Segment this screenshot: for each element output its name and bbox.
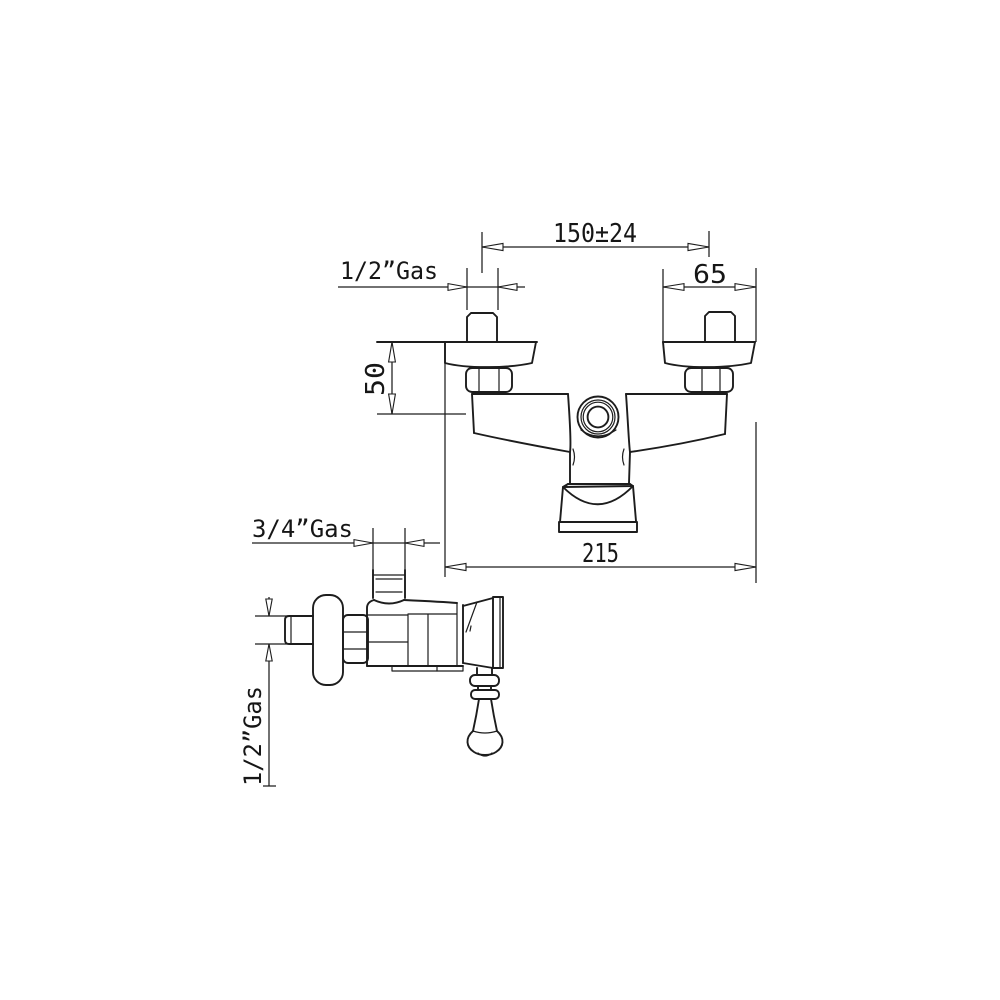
column-fillet-left	[573, 449, 575, 465]
escutcheon-cone-line	[466, 602, 477, 632]
arrowhead-34-left	[354, 540, 373, 547]
outlet-stub-side	[373, 570, 405, 598]
left-inlet-stub	[467, 313, 497, 341]
handle-bulb	[467, 731, 502, 755]
hex-nut-side	[343, 615, 368, 663]
arrowhead-inlet-right	[498, 284, 517, 291]
left-nut-facets	[479, 369, 499, 391]
mixer-tap-drawing: 150±24 1/2”Gas 65 50 215 3/4”Gas	[0, 0, 1000, 1000]
escutcheon-tick	[470, 626, 471, 631]
arrowhead-65-right	[735, 284, 756, 291]
arrowhead-50-top	[389, 342, 396, 362]
dim-label-wall-depth: 50	[361, 362, 391, 396]
body-right-edge	[725, 394, 727, 434]
spout-lip-arc	[563, 486, 633, 504]
arrowhead-215-right	[735, 563, 756, 570]
front-view	[377, 312, 755, 532]
dim-label-center-distance: 150±24	[553, 219, 637, 249]
arrowhead-50-bottom	[389, 394, 396, 414]
left-wing-bottom	[474, 433, 570, 452]
valve-body-saddle	[374, 600, 404, 604]
spout-bottom-band	[559, 522, 637, 532]
side-view	[285, 570, 503, 756]
handle-bulb-top	[473, 731, 497, 733]
right-inlet-stub	[705, 312, 735, 341]
technical-drawing-page: 150±24 1/2”Gas 65 50 215 3/4”Gas	[0, 0, 1000, 1000]
handle-ring1	[470, 675, 499, 686]
dim-label-side-inlet-thread: 1/2”Gas	[239, 686, 267, 786]
ext-lines-outlet-thread	[373, 528, 405, 570]
column-left-edge	[568, 394, 570, 483]
valve-body-top-right	[404, 600, 457, 603]
outlet-circle-inner	[588, 407, 609, 428]
outlet-circle-ring1	[581, 400, 615, 434]
dim-label-flange-width: 65	[693, 260, 727, 290]
arrowhead-inlet-left	[448, 284, 467, 291]
hex-nut-facets-side	[344, 632, 367, 649]
wall-flange-side	[313, 595, 343, 685]
body-left-edge	[472, 394, 474, 433]
outlet-boss-arc	[581, 430, 616, 436]
spout-right-side	[633, 486, 636, 521]
right-nut-facets	[702, 369, 720, 391]
arrowhead-65-left	[663, 284, 684, 291]
dim-label-outlet-thread: 3/4”Gas	[252, 515, 353, 543]
escutcheon-top-edge	[463, 598, 493, 606]
left-union-nut	[466, 368, 512, 392]
spout-left-side	[560, 487, 563, 522]
dim-label-top-inlet-thread: 1/2”Gas	[340, 257, 438, 285]
left-union-flange	[445, 342, 536, 367]
escutcheon-rim	[493, 597, 503, 668]
right-union-nut	[685, 368, 733, 392]
right-wing-bottom	[630, 434, 725, 452]
arrowhead-left	[482, 243, 503, 250]
arrowhead-215-left	[445, 563, 466, 570]
arrowhead-side-top	[266, 599, 272, 616]
column-right-edge	[626, 394, 630, 483]
right-union-flange	[663, 342, 755, 367]
arrowhead-34-right	[405, 540, 424, 547]
column-fillet-right	[623, 449, 625, 465]
inlet-stub-side	[285, 616, 313, 644]
handle-shaft	[473, 699, 497, 731]
arrowhead-side-bottom	[266, 644, 272, 661]
dim-label-overall-width: 215	[582, 539, 619, 569]
handle-neck	[477, 668, 492, 675]
dimensions: 150±24 1/2”Gas 65 50 215 3/4”Gas	[239, 219, 756, 786]
arrowhead-right	[688, 243, 709, 250]
escutcheon-bottom-edge	[463, 663, 493, 668]
ext-lines-top-inlet	[467, 268, 498, 310]
handle-ring2	[471, 690, 499, 699]
outlet-stub-bands	[373, 575, 405, 592]
valve-body-inner-lines	[367, 603, 457, 666]
